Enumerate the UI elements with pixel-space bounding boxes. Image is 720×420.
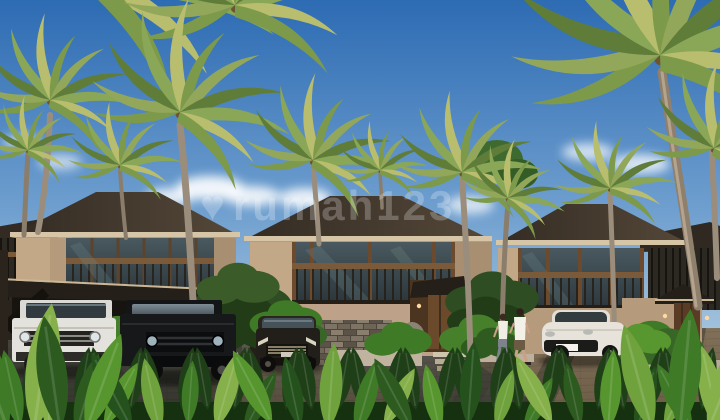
villa-render-image: ♥ rumah123	[0, 0, 720, 420]
scene-canvas	[0, 0, 720, 420]
wall-lamp	[705, 316, 709, 320]
wall-lamp	[663, 314, 667, 318]
wall-lamp	[417, 304, 421, 308]
